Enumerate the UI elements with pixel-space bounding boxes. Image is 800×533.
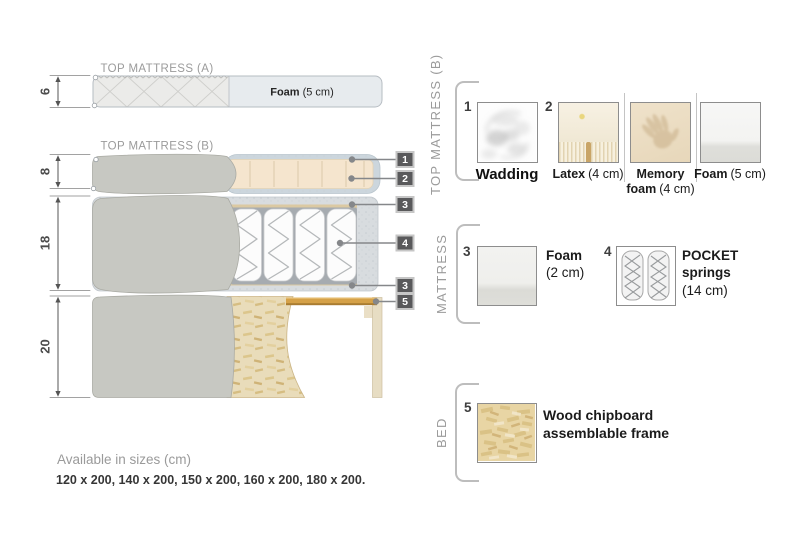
- foam5-texture: [701, 103, 760, 162]
- foam2-caption: Foam (2 cm): [546, 247, 606, 282]
- foam-blocks: [227, 160, 373, 189]
- legend-group-bed-bracket: [455, 383, 479, 482]
- dimension-8: 8: [38, 155, 91, 189]
- foam-a-label: Foam(5 cm): [270, 87, 334, 99]
- legend-group-bed-label: BED: [434, 383, 452, 482]
- svg-text:3: 3: [402, 199, 408, 211]
- memory-foam-caption-detail: (4 cm): [659, 182, 694, 196]
- latex-swatch: [558, 102, 619, 163]
- wadding-swatch: [477, 102, 538, 163]
- chipboard-swatch: [477, 403, 537, 463]
- svg-text:2: 2: [402, 173, 408, 185]
- top-mattress-b-title: TOP MATTRESS (B): [100, 141, 213, 153]
- foam2-swatch: [477, 246, 537, 306]
- svg-text:5: 5: [402, 296, 408, 308]
- legend-group-top-mattress-b-label: TOP MATTRESS (B): [428, 65, 446, 195]
- callout-badges: 1 2 3 4 3: [396, 151, 415, 310]
- legend-item-number: 5: [464, 400, 472, 415]
- foam5-swatch: [700, 102, 761, 163]
- foam2-caption-name: Foam: [546, 247, 606, 264]
- legend-item-number: 1: [464, 99, 472, 114]
- chipboard-texture-icon: [478, 404, 535, 461]
- dimension-18: 18: [38, 196, 91, 291]
- dimension-20: 20: [38, 296, 91, 398]
- mattress-diagram: [93, 196, 379, 294]
- latex-caption-name: Latex: [552, 167, 585, 181]
- foam5-caption-detail: (5 cm): [730, 167, 765, 181]
- fabric-cover-bed: [93, 295, 235, 397]
- dimension-6: 6: [38, 76, 91, 108]
- wadding-caption: Wadding: [461, 166, 553, 184]
- legend-item-number: 2: [545, 99, 553, 114]
- pocket-springs-caption-name: POCKET springs: [682, 248, 738, 280]
- badge-3: 3: [396, 196, 415, 213]
- memory-foam-swatch: [630, 102, 691, 163]
- svg-text:3: 3: [402, 280, 408, 292]
- pocket-springs-caption-detail: (14 cm): [682, 282, 766, 299]
- mattress-construction-infographic: 6 8 18 20 TOP MATTRESS (A: [0, 0, 800, 533]
- dimension-20-label: 20: [38, 339, 53, 353]
- pocket-springs-caption: POCKET springs (14 cm): [682, 247, 766, 299]
- legend-group-mattress-label: MATTRESS: [434, 224, 452, 324]
- bed-diagram: [93, 295, 383, 397]
- dimension-8-label: 8: [38, 168, 53, 175]
- hand-imprint-icon: [631, 103, 689, 161]
- badge-3b: 3: [396, 277, 415, 294]
- latex-texture: [559, 103, 618, 162]
- badge-1: 1: [396, 151, 415, 168]
- sizes-list: 120 x 200, 140 x 200, 150 x 200, 160 x 2…: [56, 473, 365, 487]
- badge-4: 4: [396, 235, 415, 252]
- chipboard-caption: Wood chipboard assemblable frame: [543, 407, 713, 443]
- wadding-texture-icon: [478, 103, 536, 161]
- svg-text:4: 4: [402, 238, 408, 250]
- pocket-springs-icon: [617, 247, 674, 304]
- foam2-texture: [478, 247, 536, 305]
- dimension-18-label: 18: [38, 236, 53, 250]
- badge-5: 5: [396, 293, 415, 310]
- foam2-caption-detail: (2 cm): [546, 264, 606, 281]
- svg-text:1: 1: [402, 154, 408, 166]
- fabric-cover-top-b: [93, 154, 237, 194]
- fabric-cover-mattress: [93, 196, 240, 294]
- foam5-caption: Foam(5 cm): [684, 167, 776, 182]
- sizes-title: Available in sizes (cm): [57, 452, 191, 467]
- top-mattress-a-diagram: TOP MATTRESS (A) Foam(5 cm): [92, 63, 382, 108]
- top-mattress-b-diagram: TOP MATTRESS (B): [91, 141, 380, 194]
- badge-2: 2: [396, 170, 415, 187]
- legend-item-number: 3: [463, 244, 471, 259]
- top-mattress-a-title: TOP MATTRESS (A): [100, 63, 213, 75]
- legend-item-number: 4: [604, 244, 612, 259]
- pocket-springs-swatch: [616, 246, 676, 306]
- dimension-6-label: 6: [38, 88, 53, 95]
- foam5-caption-name: Foam: [694, 167, 727, 181]
- tan-strip-top: [230, 205, 357, 209]
- frame-side-board: [373, 298, 383, 398]
- latex-caption-detail: (4 cm): [588, 167, 623, 181]
